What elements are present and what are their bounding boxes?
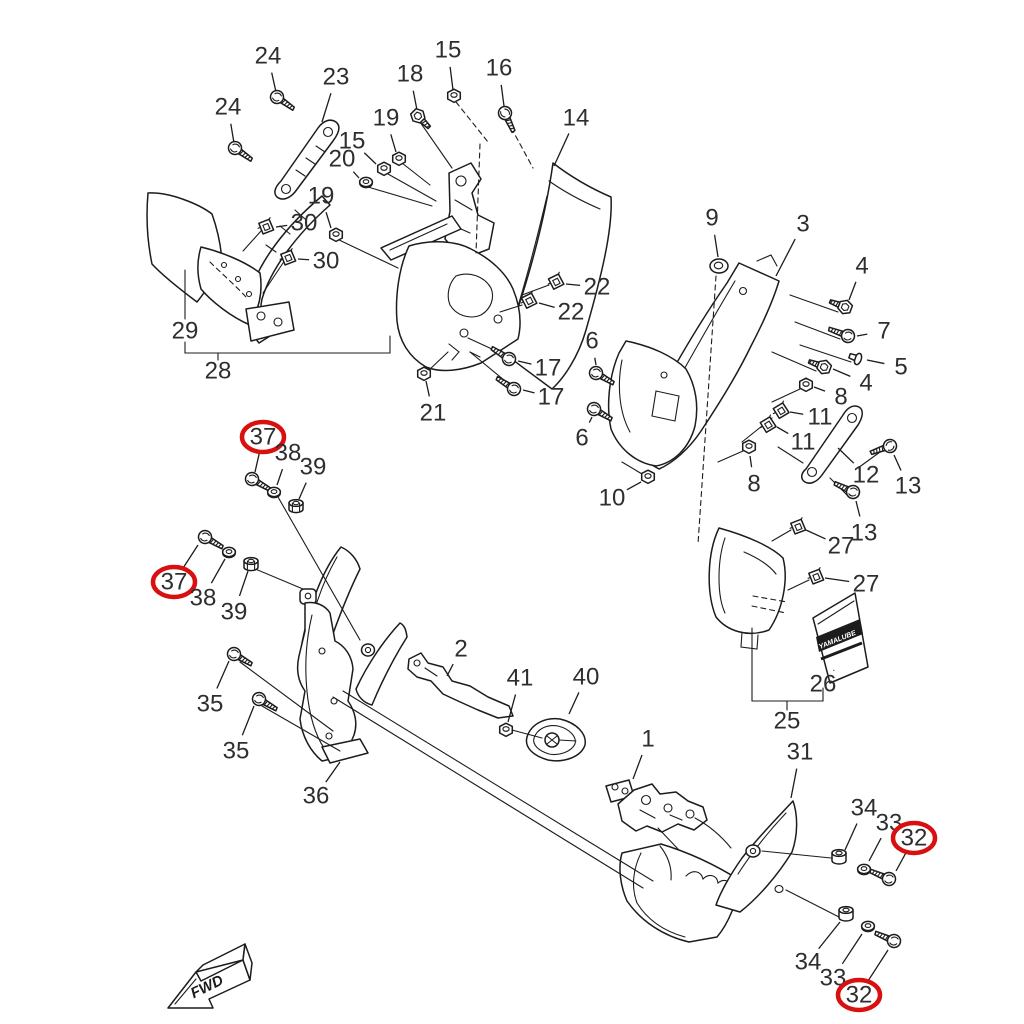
- leader-line: [183, 545, 198, 568]
- part-number-label: 40: [573, 664, 600, 691]
- part-number-label: 12: [853, 462, 880, 489]
- part-number-label: 4: [859, 370, 872, 397]
- part-number-label: 33: [876, 810, 903, 837]
- leader-line: [814, 387, 825, 391]
- part-number-label: 2: [454, 636, 467, 663]
- bolt-icon: [807, 355, 833, 376]
- part-number-label: 9: [705, 205, 718, 232]
- part-number-label: 1: [641, 726, 654, 753]
- part-number-label: 13: [895, 473, 922, 500]
- grommet-icon: [710, 259, 728, 273]
- part-hole: [746, 845, 760, 857]
- part-number-label: 26: [810, 671, 837, 698]
- part-number-label: 23: [323, 64, 350, 91]
- part-number-label: 18: [397, 61, 424, 88]
- nut-icon: [330, 228, 343, 241]
- part-number-label: 4: [855, 253, 868, 280]
- part-number-label: 16: [486, 55, 513, 82]
- washer-icon: [268, 487, 281, 497]
- clip-icon: [256, 218, 274, 235]
- assembly-line: [456, 102, 488, 142]
- leader-line: [806, 530, 826, 539]
- collar-icon: [839, 907, 853, 921]
- fwd-arrow: FWD: [168, 944, 252, 1008]
- nut-icon: [448, 89, 461, 102]
- part-number-label: 20: [329, 146, 356, 173]
- part-number-label: 8: [747, 471, 760, 498]
- screw-icon: [827, 323, 857, 344]
- leader-line: [391, 134, 396, 152]
- part-number-label: 30: [291, 210, 318, 237]
- screw-icon: [493, 373, 523, 398]
- part-number-label: 28: [205, 358, 232, 385]
- leader-line: [239, 571, 248, 596]
- clip-icon: [757, 415, 776, 434]
- part-outline-bracket-2: [408, 653, 513, 718]
- leader-line: [896, 853, 906, 871]
- part-number-label: 21: [420, 400, 447, 427]
- leader-line: [842, 934, 862, 964]
- nut-icon: [743, 440, 756, 453]
- screw-icon: [496, 104, 519, 134]
- part-number-label: 22: [584, 274, 611, 301]
- leader-line: [501, 85, 504, 106]
- part-number-label: 31: [787, 739, 814, 766]
- part-number-label: 39: [221, 599, 248, 626]
- nut-icon: [378, 162, 391, 175]
- collar-icon: [832, 850, 846, 864]
- part-number-label: 34: [851, 795, 878, 822]
- leader-line: [523, 390, 535, 393]
- part-number-label: 5: [894, 354, 907, 381]
- part-number-label: 6: [585, 328, 598, 355]
- clip-icon: [788, 518, 806, 535]
- part-number-label: 27: [853, 571, 880, 598]
- leader-line: [353, 172, 359, 178]
- leader-line: [255, 454, 259, 472]
- assembly-line: [388, 174, 436, 201]
- flangenut-icon: [289, 500, 303, 513]
- bolt-icon: [408, 106, 434, 132]
- part-number-label: 7: [877, 318, 890, 345]
- washer-icon: [223, 547, 236, 557]
- part-number-label: 38: [275, 440, 302, 467]
- leader-line: [554, 133, 569, 166]
- leader-line: [777, 427, 788, 434]
- leader-line: [589, 417, 592, 423]
- nut-icon: [500, 723, 513, 736]
- leader-line: [894, 455, 901, 471]
- nut-icon: [393, 152, 406, 165]
- part-number-label: 34: [795, 949, 822, 976]
- part-number-label: 11: [791, 429, 816, 456]
- leader-line: [633, 755, 642, 779]
- leader-line: [364, 153, 376, 164]
- part-number-label: 3: [796, 211, 809, 238]
- leader-line: [231, 124, 234, 143]
- assembly-line: [420, 122, 452, 168]
- part-number-label: 38: [190, 585, 217, 612]
- part-number-label: 37: [250, 424, 277, 451]
- leader-line: [849, 282, 856, 300]
- leader-line: [276, 225, 287, 227]
- flangenut-icon: [244, 558, 258, 571]
- part-number-label: 19: [308, 183, 335, 210]
- leader-line: [217, 661, 229, 688]
- leader-line: [790, 412, 803, 414]
- part-number-label: 24: [215, 94, 242, 121]
- leader-line: [715, 235, 718, 257]
- part-number-label: 27: [828, 533, 855, 560]
- leader-line: [413, 91, 417, 110]
- part-number-label: 30: [313, 248, 340, 275]
- clip-icon: [770, 401, 789, 420]
- leader-line: [569, 692, 579, 714]
- part-number-label: 17: [538, 384, 565, 411]
- leader-line: [819, 922, 840, 949]
- leader-line: [857, 334, 867, 336]
- part-number-label: 13: [851, 520, 878, 547]
- part-number-label: 15: [435, 37, 462, 64]
- part-hole: [775, 886, 783, 893]
- leader-line: [856, 501, 860, 517]
- part-number-label: 39: [300, 454, 327, 481]
- leader-line: [833, 369, 850, 376]
- assembly-line: [243, 231, 261, 251]
- assembly-line: [253, 568, 303, 589]
- part-number-label: 6: [575, 425, 588, 452]
- leader-line: [272, 73, 276, 92]
- clip-icon: [806, 568, 824, 585]
- leader-line: [211, 559, 225, 583]
- part-number-label: 35: [223, 738, 250, 765]
- nut-icon: [418, 367, 431, 380]
- washer-icon: [858, 864, 871, 874]
- screw-icon: [873, 927, 903, 950]
- leader-line: [450, 67, 453, 90]
- part-number-label: 37: [161, 569, 188, 596]
- part-number-label: 22: [558, 299, 585, 326]
- part-number-label: 35: [197, 691, 224, 718]
- part-number-label: 10: [599, 485, 626, 512]
- part-number-label: 41: [507, 665, 534, 692]
- part-outline-panel-25: [709, 528, 785, 633]
- part-number-label: 29: [172, 318, 199, 345]
- part-number-label: 8: [834, 384, 847, 411]
- screw-icon: [196, 528, 226, 553]
- diagram-canvas: YAMALUBE: [0, 0, 1024, 1024]
- part-number-label: 32: [846, 982, 873, 1009]
- washer-icon: [360, 177, 373, 187]
- part-number-label: 17: [535, 355, 562, 382]
- assembly-line: [402, 163, 430, 185]
- leader-line: [322, 93, 331, 122]
- leader-line: [595, 358, 596, 365]
- leader-line: [627, 482, 641, 490]
- leader-line: [776, 239, 795, 276]
- nut-icon: [642, 470, 655, 483]
- leader-line: [845, 823, 857, 850]
- rivet-icon: [848, 350, 863, 365]
- screw-icon: [268, 88, 298, 114]
- stay-line: [333, 697, 643, 888]
- bracket-line-25: [752, 628, 823, 710]
- leader-line: [299, 483, 306, 499]
- leader-line: [825, 578, 849, 582]
- part-outline-plate-28: [246, 302, 294, 341]
- leader-line: [868, 950, 888, 981]
- leader-line: [750, 456, 752, 467]
- leader-line: [447, 664, 453, 676]
- screw-icon: [226, 139, 256, 165]
- nut-icon: [800, 378, 813, 391]
- part-hole: [362, 644, 375, 656]
- leader-line: [867, 360, 884, 364]
- part-number-label: 24: [255, 43, 282, 70]
- screw-icon: [225, 645, 255, 670]
- parts-diagram: YAMALUBE: [0, 0, 1024, 1024]
- washer-icon: [862, 921, 875, 931]
- leader-line: [791, 769, 797, 798]
- part-number-label: 32: [901, 825, 928, 852]
- part-number-label: 14: [563, 105, 590, 132]
- assembly-line: [368, 187, 432, 206]
- leader-line: [838, 448, 854, 463]
- part-number-label: 25: [774, 708, 801, 735]
- part-number-label: 36: [303, 783, 330, 810]
- part-number-label: 19: [373, 105, 400, 132]
- part-hole: [300, 589, 316, 604]
- bracket-line-28: [185, 336, 390, 360]
- part-outline-blade-36: [356, 623, 407, 705]
- screw-icon: [250, 690, 280, 715]
- leader-line: [326, 762, 340, 782]
- screw-icon: [868, 865, 898, 888]
- part-number-label: 11: [808, 404, 833, 431]
- leader-line: [277, 469, 282, 485]
- leader-line: [326, 212, 331, 228]
- leader-line: [242, 706, 254, 735]
- leader-line: [869, 838, 881, 861]
- leader-line: [298, 259, 309, 260]
- leader-line: [426, 381, 429, 396]
